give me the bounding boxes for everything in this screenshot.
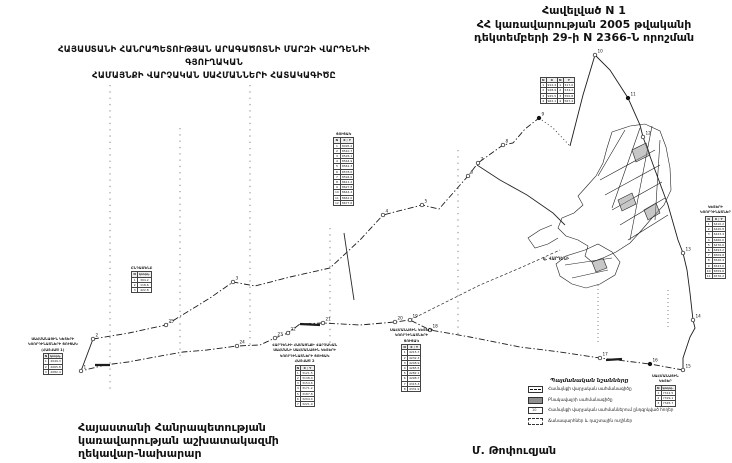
table-row: 46460.0 [705, 237, 725, 242]
table-row: 54282.1 [402, 371, 421, 376]
boundary-point [537, 116, 541, 120]
table-row: 12049.3 [43, 359, 63, 364]
table-cell: 7345.7 [661, 401, 675, 406]
table-row: 2118.6 [132, 282, 152, 287]
table-caption-line: ՍԱՀՄԱՆԱՅԻՆ [652, 374, 679, 378]
boundary-point-label: 22 [291, 327, 297, 332]
boundary-point-label: 7 [481, 157, 484, 162]
coordinate-table: NY1517.62534.23550.84567.4 [557, 77, 575, 104]
table-row: 78594.6 [334, 174, 354, 179]
coordinate-table: Nկոորդ.12049.322065.832082.4 [43, 353, 64, 375]
table-cell: 6476.6 [712, 242, 726, 247]
table-row: 58561.3 [334, 164, 354, 169]
s-lands-icon [528, 407, 543, 414]
table-cell: 7329.1 [661, 396, 675, 401]
table-cell: 8510.7 [340, 148, 354, 153]
table-cell: 6443.4 [712, 232, 726, 237]
table-row: 3945.5 [541, 93, 558, 98]
table-row: 53187.8 [295, 391, 314, 396]
table-cell: 8594.6 [340, 174, 354, 179]
boundary-point-label: 4 [386, 209, 389, 214]
boundary-point [420, 203, 424, 207]
coordinate-table: NX ; Y14215.724232.334248.944265.554282.… [401, 344, 421, 392]
boundary-point [321, 321, 325, 325]
table-row: 1517.6 [558, 83, 575, 88]
boundary-point-label: 13 [686, 247, 692, 252]
table-row: 17312.5 [656, 391, 676, 396]
table-caption-line: ԿԵՏԵՐ [652, 379, 679, 383]
coordinate-table-header: կոորդ. [49, 354, 63, 359]
s-roads-icon [528, 418, 543, 425]
table-cell: 3138.0 [301, 376, 315, 381]
legend-item: Ճանապարհներ և դաշտային ուղիներ [528, 418, 690, 425]
boundary-point-label: 16 [653, 358, 659, 363]
table-cell: 3221.0 [301, 402, 315, 407]
table-cell: 8677.6 [340, 200, 354, 205]
table-caption-line: ՍԱՀՄԱՆԱՅԻՆ ԿԵՏԵՐԻ [28, 337, 78, 341]
table-row: 88611.2 [334, 180, 354, 185]
internal-roads [344, 165, 668, 345]
table-cell: 4315.3 [407, 381, 421, 386]
table-row: 28510.7 [334, 148, 354, 153]
boundary-point [286, 331, 290, 335]
boundary-point-label: 11 [631, 92, 637, 97]
table-row: 22065.8 [43, 364, 63, 369]
table-caption-line: ՑՈՒՑԱԿ [390, 339, 433, 343]
table-row: 2534.2 [558, 88, 575, 93]
table-cell: 517.6 [563, 83, 575, 88]
table-caption-line: ՍԱՀՄԱՆԱՅԻՆ ԿԵՏԵՐԻ [390, 328, 433, 332]
boundary-point [501, 143, 505, 147]
legend-item-label: Բնակավայրի սահմանագիծը [548, 398, 613, 403]
boundary-point-label: 9 [542, 112, 545, 117]
signer-name: Մ. Թոփուզյան [472, 444, 556, 457]
table-row: 34248.9 [402, 360, 421, 365]
table-caption-line: ՑՈՒՑԱԿ [333, 132, 354, 136]
table-cell: 6426.8 [712, 227, 726, 232]
table-cell: 11 [705, 274, 712, 279]
boundary-point-label: 14 [696, 314, 702, 319]
boundary-point-label: 8 [506, 139, 509, 144]
table-cell: 6559.6 [712, 268, 726, 273]
table-cell: 8661.0 [340, 195, 354, 200]
coordinate-table: NX ; Y16410.226426.836443.446460.056476.… [705, 216, 726, 279]
boundary-point [641, 135, 645, 139]
table-row: 16410.2 [705, 222, 725, 227]
boundary-point [626, 96, 630, 100]
table-row: 98627.8 [334, 185, 354, 190]
boundary-point-label: 15 [686, 364, 692, 369]
table-row: 1912.4 [541, 83, 558, 88]
signature-block: Հայաստանի Հանրապետության կառավարության ա… [78, 421, 279, 460]
boundary-point [598, 356, 602, 360]
table-row: 68578.0 [334, 169, 354, 174]
boundary-point [91, 337, 95, 341]
table-cell: 4248.9 [407, 360, 421, 365]
table-cell: 6509.8 [712, 253, 726, 258]
legend-item-label: Համայնքի վարչական սահմանագիծը [548, 387, 632, 392]
table-row: 44265.5 [402, 366, 421, 371]
table-cell: 3121.5 [301, 370, 315, 375]
table-row: 38526.1 [334, 154, 354, 159]
table-row: 13121.5 [295, 370, 314, 375]
boundary-point-label: 24 [240, 340, 246, 345]
boundary-points-layer: 1234567891011121314151617181920212223242… [79, 49, 701, 373]
table-caption-line: (ՀԱՏՎԱԾ 1) [28, 348, 78, 352]
boundary-point-label: 1 [84, 365, 87, 370]
boundary-point-label: 17 [603, 352, 609, 357]
coordinate-table: Nկոորդ.17312.527329.137345.7 [655, 385, 676, 407]
boundary-point-label: 5 [425, 199, 428, 204]
stamp-top-right-b: NY1517.62534.23550.84567.4 [557, 77, 575, 104]
stamp-right-edge: ԿԵՏԵՐԻԿՈՈՐԴԻՆԱՏՆԵՐNX ; Y16410.226426.836… [700, 205, 731, 279]
boundary-point-label: 25 [169, 319, 175, 324]
table-row: 96543.0 [705, 263, 725, 268]
table-caption-line: ԿՈՈՐԴԻՆԱՏՆԵՐԻ ՑՈՒՑԱԿ [28, 342, 78, 346]
table-row: 108644.4 [334, 190, 354, 195]
table-row: 3550.8 [558, 93, 575, 98]
table-row: 128677.6 [334, 200, 354, 205]
boundary-point [381, 213, 385, 217]
table-caption-line: ՀԱՏՎԱԾ 2 [272, 359, 337, 363]
table-row: 2928.9 [541, 88, 558, 93]
boundary-point-label: 6 [471, 170, 474, 175]
table-row: 23138.0 [295, 376, 314, 381]
stamp-tall-center: ՑՈՒՑԱԿNX ; Y18495.228510.738526.148544.9… [333, 132, 354, 206]
table-caption-line: ՎԱՐԴԵՆԻԻ ՀԱՄԱՅՆՔԻ ՎԱՐՉԱԿԱՆ [272, 343, 337, 347]
boundary-point-label: 19 [413, 314, 419, 319]
table-cell: 4282.1 [407, 371, 421, 376]
table-cell: 6576.2 [712, 274, 726, 279]
table-caption-line: ՍԱՀՄԱՆԻ ՍԱՀՄԱՆԱՅԻՆ ԿԵՏԵՐԻ [272, 348, 337, 352]
table-caption-line: ԸՆԴԱՄԵՆԸ [131, 266, 152, 270]
signature-line-3: ղեկավար-նախարար [78, 447, 279, 460]
table-row: 64298.7 [402, 376, 421, 381]
boundary-point-label: 21 [326, 317, 332, 322]
table-row: 32082.4 [43, 369, 63, 374]
table-row: 4962.1 [541, 98, 558, 103]
coordinate-table: NX1912.42928.93945.54962.1 [540, 77, 558, 104]
boundary-point-label: 2 [96, 333, 99, 338]
table-cell: 4298.7 [407, 376, 421, 381]
table-cell: 6460.0 [712, 237, 726, 242]
table-cell: 8644.4 [340, 190, 354, 195]
table-cell: 962.1 [546, 98, 558, 103]
table-caption-line: ԿՈՈՐԴԻՆԱՏՆԵՐ [700, 210, 731, 214]
table-cell: 4265.5 [407, 366, 421, 371]
legend-item-label: Ճանապարհներ և դաշտային ուղիներ [548, 419, 632, 424]
map-sheet: Հավելված N 1 ՀՀ կառավարության 2005 թվակա… [0, 0, 732, 463]
table-cell: 912.4 [546, 83, 558, 88]
stamp-bottom-center-1: ՎԱՐԴԵՆԻԻ ՀԱՄԱՅՆՔԻ ՎԱՐՉԱԿԱՆՍԱՀՄԱՆԻ ՍԱՀՄԱՆ… [272, 343, 337, 407]
stamp-top-right-a: NX1912.42928.93945.54962.1 [540, 77, 558, 104]
table-cell: 3171.2 [301, 386, 315, 391]
boundary-point [235, 344, 239, 348]
table-caption-line: ԿՈՈՐԴԻՆԱՏՆԵՐԻ ՑՈՒՑԱԿ [272, 354, 337, 358]
table-row: 27329.1 [656, 396, 676, 401]
boundary-point [593, 53, 597, 57]
boundary-point [691, 318, 695, 322]
table-row: 48544.9 [334, 159, 354, 164]
table-row: 14215.7 [402, 350, 421, 355]
table-row: 36443.4 [705, 232, 725, 237]
table-cell: 534.2 [563, 88, 575, 93]
s-settlement-icon [528, 397, 543, 404]
table-cell: 567.4 [563, 98, 575, 103]
table-row: 66493.2 [705, 248, 725, 253]
table-row: 86526.4 [705, 258, 725, 263]
boundary-point [681, 368, 685, 372]
boundary-point [164, 323, 168, 327]
table-cell: 4215.7 [407, 350, 421, 355]
table-row: 106559.6 [705, 268, 725, 273]
coordinate-table: NX ; Y18495.228510.738526.148544.958561.… [333, 137, 354, 206]
table-cell: 422.8 [137, 288, 151, 293]
table-row: 4567.4 [558, 98, 575, 103]
table-caption-line: ԿԵՏԵՐԻ [700, 205, 731, 209]
table-cell: 945.5 [546, 93, 558, 98]
signature-line-2: կառավարության աշխատակազմի [78, 434, 279, 447]
signature-line-1: Հայաստանի Հանրապետության [78, 421, 279, 434]
boundary-point-label: 20 [398, 316, 404, 321]
table-cell: 8627.8 [340, 185, 354, 190]
boundary-point-label: 10 [598, 49, 604, 54]
table-cell: 6543.0 [712, 263, 726, 268]
table-row: 56476.6 [705, 242, 725, 247]
stamp-bottom-center-2: ՍԱՀՄԱՆԱՅԻՆ ԿԵՏԵՐԻԿՈՈՐԴԻՆԱՏՆԵՐԻՑՈՒՑԱԿNX ;… [390, 328, 433, 392]
boundary-point-label: 12 [646, 131, 652, 136]
table-row: 3422.8 [132, 288, 152, 293]
table-cell: 3187.8 [301, 391, 315, 396]
boundary-point [273, 336, 277, 340]
table-cell: 4232.3 [407, 355, 421, 360]
boundary-point-label: 18 [433, 324, 439, 329]
stamp-mid-left: ԸՆԴԱՄԵՆԸNկոորդ.1304.22118.63422.8 [131, 266, 152, 293]
table-cell: 2082.4 [49, 369, 63, 374]
table-cell: 8561.3 [340, 164, 354, 169]
village-label: գ. ՎԱՐԴԵՆԻ [543, 256, 569, 261]
table-row: 1304.2 [132, 277, 152, 282]
table-row: 118661.0 [334, 195, 354, 200]
table-row: 37345.7 [656, 401, 676, 406]
coordinate-table-header: կոորդ. [137, 272, 151, 277]
table-row: 63204.4 [295, 396, 314, 401]
coordinate-table: Nկոորդ.1304.22118.63422.8 [131, 271, 152, 293]
table-cell: 6526.4 [712, 258, 726, 263]
table-cell: 8611.2 [340, 180, 354, 185]
stamp-left-bottom: ՍԱՀՄԱՆԱՅԻՆ ԿԵՏԵՐԻԿՈՈՐԴԻՆԱՏՆԵՐԻ ՑՈՒՑԱԿ(ՀԱ… [28, 337, 78, 375]
table-caption-line: ԿՈՈՐԴԻՆԱՏՆԵՐԻ [390, 333, 433, 337]
table-cell: 6410.2 [712, 222, 726, 227]
table-cell: 12 [334, 200, 341, 205]
table-row: 84331.9 [402, 386, 421, 391]
boundary-point-label: 23 [278, 332, 284, 337]
boundary-point [393, 320, 397, 324]
table-row: 73221.0 [295, 402, 314, 407]
boundary-point [408, 318, 412, 322]
legend-item: Համայնքի վարչական սահմաններում ընդգրկված… [528, 407, 690, 414]
table-cell: 8544.9 [340, 159, 354, 164]
table-row: 26426.8 [705, 227, 725, 232]
table-cell: 928.9 [546, 88, 558, 93]
table-row: 43171.2 [295, 386, 314, 391]
table-cell: 6493.2 [712, 248, 726, 253]
boundary-point [466, 174, 470, 178]
table-row: 18495.2 [334, 143, 354, 148]
table-row: 33154.6 [295, 381, 314, 386]
boundary-point-label: 3 [236, 276, 239, 281]
legend-item-label: Համայնքի վարչական սահմաններում ընդգրկված… [548, 408, 673, 413]
table-row: 116576.2 [705, 274, 725, 279]
settlement-parcels [528, 124, 671, 288]
boundary-point [681, 251, 685, 255]
coordinate-table: NX ; Y13121.523138.033154.643171.253187.… [295, 365, 315, 408]
table-cell: 8495.2 [340, 143, 354, 148]
s-boundary-icon [528, 386, 543, 393]
stamp-bottom-right: ՍԱՀՄԱՆԱՅԻՆԿԵՏԵՐNկոորդ.17312.527329.13734… [652, 374, 679, 407]
boundary-point [476, 161, 480, 165]
table-row: 24232.3 [402, 355, 421, 360]
table-cell: 3204.4 [301, 396, 315, 401]
table-cell: 8578.0 [340, 169, 354, 174]
table-cell: 4331.9 [407, 386, 421, 391]
table-cell: 2049.3 [49, 359, 63, 364]
boundary-point [79, 369, 83, 373]
table-row: 76509.8 [705, 253, 725, 258]
table-cell: 8526.1 [340, 154, 354, 159]
table-cell: 3154.6 [301, 381, 315, 386]
boundary-point [648, 362, 652, 366]
table-cell: 7312.5 [661, 391, 675, 396]
table-cell: 550.8 [563, 93, 575, 98]
boundary-point [231, 280, 235, 284]
table-cell: 2065.8 [49, 364, 63, 369]
coordinate-table-header: կոորդ. [661, 385, 675, 390]
table-row: 74315.3 [402, 381, 421, 386]
